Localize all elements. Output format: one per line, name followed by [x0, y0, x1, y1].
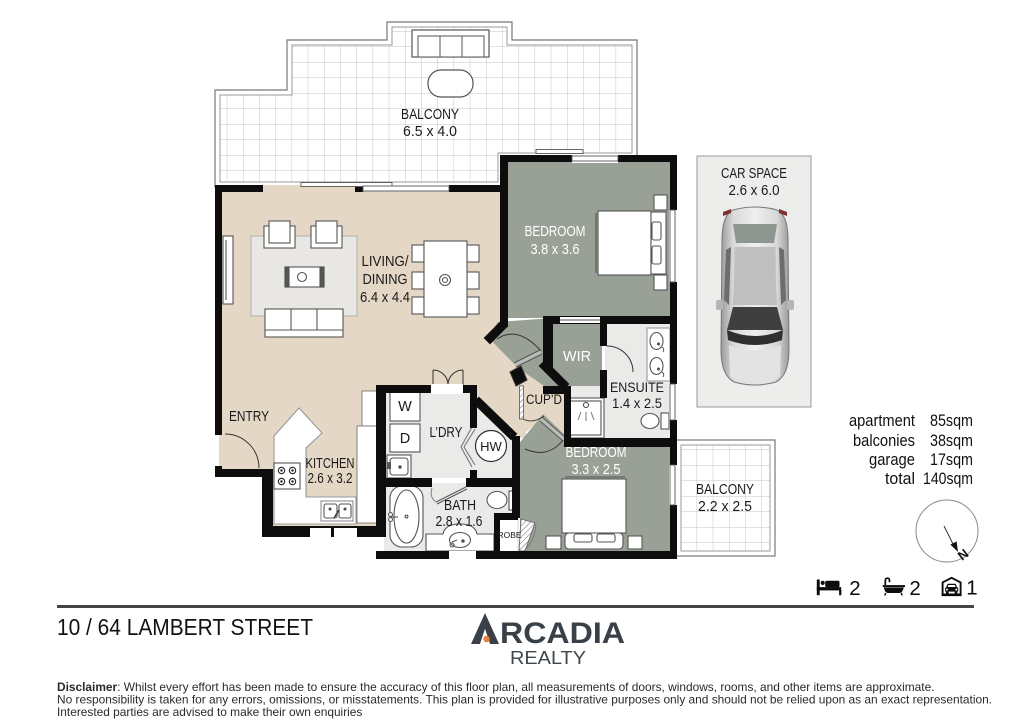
svg-text:HW: HW — [480, 439, 502, 454]
svg-text:D: D — [400, 431, 410, 447]
svg-text:garage: garage — [869, 451, 915, 469]
svg-text:KITCHEN: KITCHEN — [306, 456, 355, 472]
svg-text:total: total — [885, 470, 915, 488]
svg-text:balconies: balconies — [853, 432, 915, 450]
svg-text:2.8 x 1.6: 2.8 x 1.6 — [436, 514, 483, 530]
svg-text:L’DRY: L’DRY — [430, 425, 463, 441]
svg-text:ENSUITE: ENSUITE — [610, 379, 664, 395]
svg-text:LIVING/: LIVING/ — [362, 253, 410, 270]
svg-text:85sqm: 85sqm — [930, 412, 973, 430]
svg-text:38sqm: 38sqm — [930, 432, 973, 450]
svg-text:2.6 x 3.2: 2.6 x 3.2 — [308, 471, 353, 487]
svg-text:17sqm: 17sqm — [930, 451, 973, 469]
svg-text:2: 2 — [909, 577, 920, 600]
svg-text:BALCONY: BALCONY — [696, 482, 754, 498]
svg-text:REALTY: REALTY — [510, 648, 586, 668]
svg-text:1: 1 — [966, 577, 977, 600]
svg-text:2.2 x 2.5: 2.2 x 2.5 — [698, 499, 752, 515]
svg-text:ROBE: ROBE — [497, 530, 521, 540]
svg-text:Interested parties are advised: Interested parties are advised to make t… — [57, 705, 362, 719]
svg-text:140sqm: 140sqm — [923, 470, 973, 488]
svg-text:10 / 64 LAMBERT STREET: 10 / 64 LAMBERT STREET — [57, 614, 313, 640]
svg-text:W: W — [398, 399, 412, 415]
svg-text:BATH: BATH — [444, 498, 476, 514]
svg-text:2.6 x 6.0: 2.6 x 6.0 — [729, 183, 780, 199]
svg-text:3.3 x 2.5: 3.3 x 2.5 — [572, 461, 621, 478]
svg-text:BEDROOM: BEDROOM — [566, 444, 627, 461]
svg-text:1.4 x 2.5: 1.4 x 2.5 — [612, 395, 662, 411]
svg-text:DINING: DINING — [363, 271, 408, 288]
svg-text:3.8 x 3.6: 3.8 x 3.6 — [531, 241, 580, 258]
svg-text:6.4 x 4.4: 6.4 x 4.4 — [360, 289, 410, 306]
svg-text:WIR: WIR — [563, 349, 591, 365]
svg-text:2: 2 — [849, 577, 860, 600]
svg-text:ENTRY: ENTRY — [229, 409, 269, 425]
svg-text:CUP’D: CUP’D — [526, 392, 562, 407]
svg-text:apartment: apartment — [849, 412, 915, 430]
svg-text:BALCONY: BALCONY — [401, 107, 459, 123]
svg-text:6.5 x 4.0: 6.5 x 4.0 — [403, 124, 457, 140]
svg-text:RCADIA: RCADIA — [500, 617, 625, 650]
svg-text:BEDROOM: BEDROOM — [525, 223, 586, 240]
svg-text:CAR SPACE: CAR SPACE — [721, 166, 787, 182]
